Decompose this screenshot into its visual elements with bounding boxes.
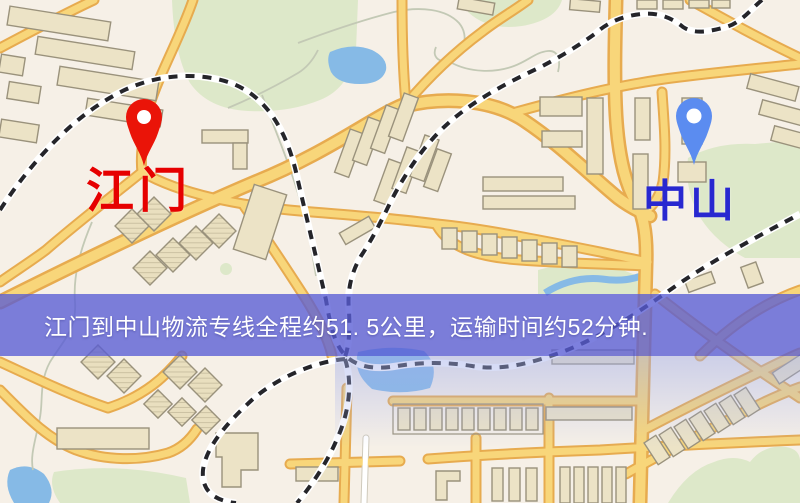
route-info-text: 江门到中山物流专线全程约51. 5公里，运输时间约52分钟.: [44, 308, 648, 342]
map-screenshot: 江门 中山 江门到中山物流专线全程约51. 5公里，运输时间约52分钟.: [0, 0, 800, 503]
map-canvas[interactable]: [0, 0, 800, 503]
origin-marker[interactable]: [114, 96, 174, 170]
red-map-pin-icon[interactable]: [114, 96, 174, 170]
destination-label: 中山: [643, 180, 737, 224]
destination-marker[interactable]: [664, 95, 724, 169]
origin-label: 江门: [86, 168, 192, 216]
route-info-banner: 江门到中山物流专线全程约51. 5公里，运输时间约52分钟.: [0, 294, 800, 356]
blue-map-pin-icon[interactable]: [664, 95, 724, 169]
